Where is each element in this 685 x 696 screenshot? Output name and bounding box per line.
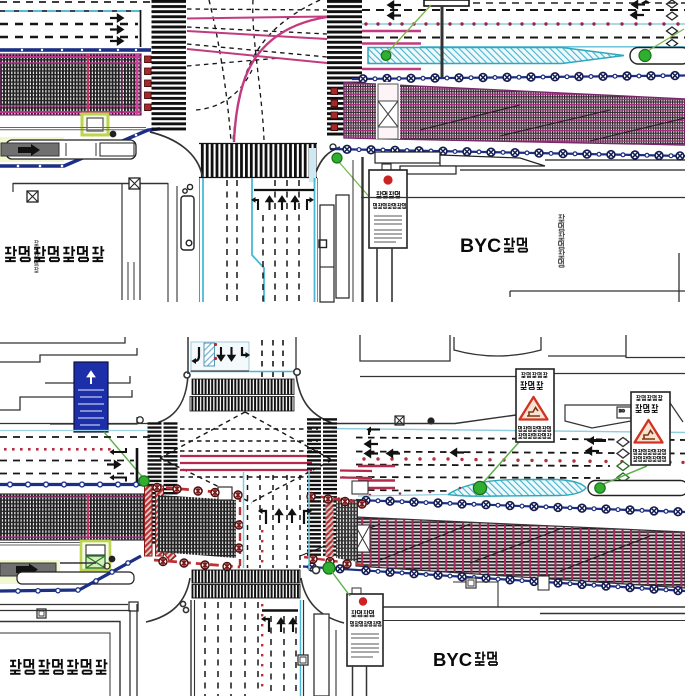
svg-text:BYC: BYC xyxy=(460,235,501,257)
svg-text:BO: BO xyxy=(619,408,625,413)
svg-text:BYC: BYC xyxy=(433,649,472,670)
